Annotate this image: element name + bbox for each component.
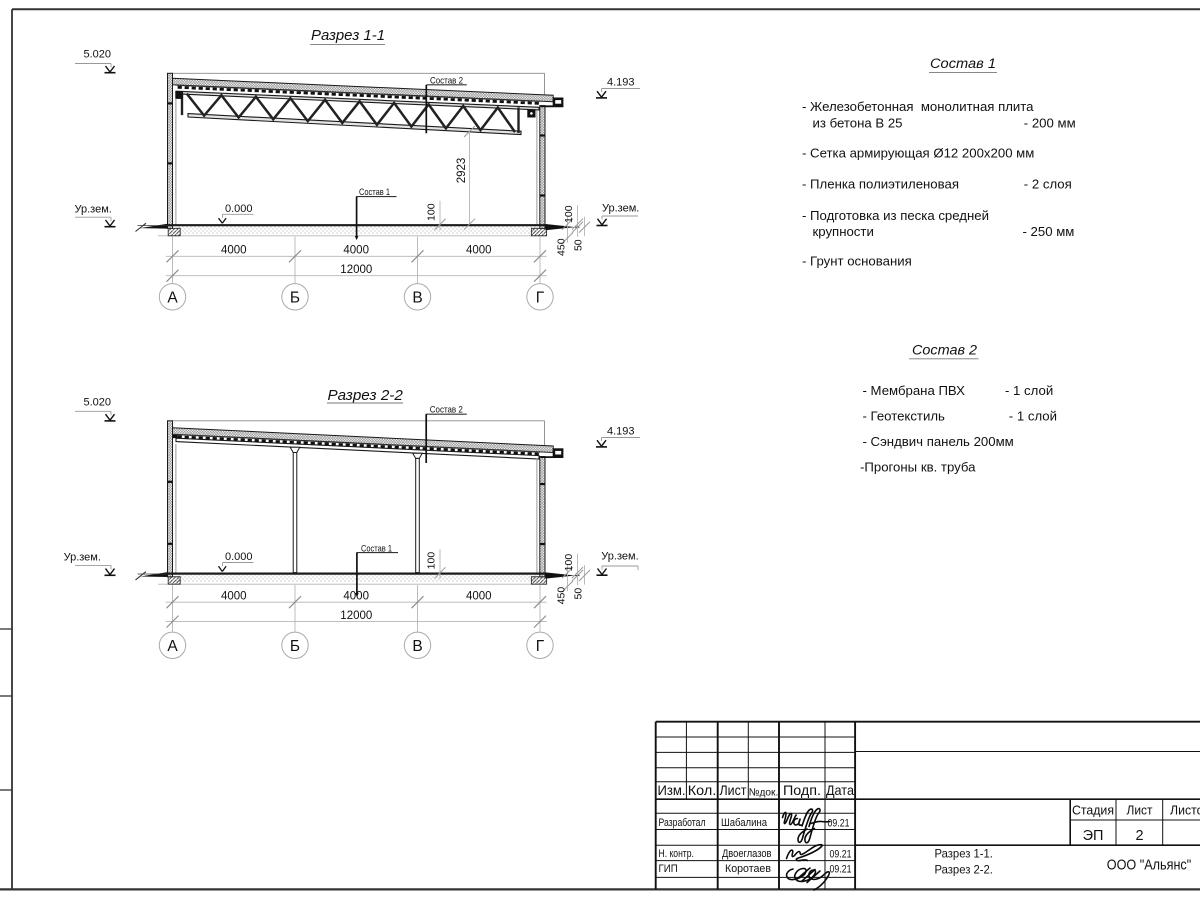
svg-text:Стадия: Стадия	[1072, 803, 1114, 818]
svg-text:из бетона В 25: из бетона В 25	[813, 116, 903, 131]
svg-text:Ур.зем.: Ур.зем.	[601, 550, 638, 562]
svg-text:4000: 4000	[221, 590, 247, 602]
svg-text:Разработал: Разработал	[659, 817, 706, 829]
svg-text:А: А	[167, 638, 178, 655]
svg-text:2: 2	[1135, 828, 1143, 844]
svg-text:50: 50	[573, 588, 585, 600]
svg-text:4.193: 4.193	[607, 77, 635, 89]
svg-text:12000: 12000	[340, 610, 372, 622]
svg-text:В: В	[412, 638, 422, 655]
svg-text:4000: 4000	[343, 590, 369, 602]
svg-text:Н. контр.: Н. контр.	[659, 848, 694, 860]
svg-text:Лист: Лист	[1127, 803, 1153, 818]
svg-text:12000: 12000	[340, 264, 372, 276]
svg-text:- Грунт основания: - Грунт основания	[802, 253, 912, 268]
svg-text:0.000: 0.000	[225, 551, 253, 563]
svg-text:- 250 мм: - 250 мм	[1023, 224, 1075, 239]
svg-text:- 2 слоя: - 2 слоя	[1024, 176, 1072, 191]
svg-text:4000: 4000	[466, 590, 492, 602]
svg-text:450: 450	[556, 238, 568, 256]
svg-text:А: А	[167, 289, 178, 306]
svg-text:5.020: 5.020	[84, 397, 112, 409]
svg-text:- Железобетонная монолитная п: - Железобетонная монолитная плита	[802, 99, 1034, 114]
svg-text:- Сетка армирующая Ø12 200х200: - Сетка армирующая Ø12 200х200 мм	[802, 146, 1034, 161]
svg-text:100: 100	[426, 552, 438, 570]
svg-text:Б: Б	[290, 289, 300, 306]
svg-text:Ур.зем.: Ур.зем.	[64, 552, 101, 564]
svg-text:-Прогоны кв. труба: -Прогоны кв. труба	[860, 460, 976, 475]
svg-text:ООО "Альянс": ООО "Альянс"	[1107, 857, 1192, 874]
svg-text:- Пленка полиэтиленовая: - Пленка полиэтиленовая	[802, 176, 959, 191]
svg-text:ЭП: ЭП	[1083, 828, 1104, 844]
svg-text:Изм.: Изм.	[658, 782, 686, 798]
svg-text:Б: Б	[290, 638, 300, 655]
svg-text:5.020: 5.020	[84, 49, 112, 61]
svg-text:крупности: крупности	[813, 224, 874, 239]
svg-text:Разрез 2-2.: Разрез 2-2.	[935, 863, 993, 877]
svg-text:Дата: Дата	[826, 782, 854, 798]
svg-text:- 1 слой: - 1 слой	[1009, 409, 1057, 424]
svg-text:- Мембрана ПВХ: - Мембрана ПВХ	[863, 383, 966, 398]
svg-text:Коротаев: Коротаев	[725, 863, 771, 875]
svg-text:Ур.зем.: Ур.зем.	[602, 203, 639, 215]
svg-text:Разрез 2-2: Разрез 2-2	[328, 387, 404, 404]
svg-text:100: 100	[426, 203, 438, 221]
svg-text:100: 100	[563, 554, 575, 572]
svg-text:Разрез 1-1: Разрез 1-1	[311, 27, 385, 44]
svg-text:ГИП: ГИП	[659, 863, 678, 875]
svg-text:В: В	[412, 289, 422, 306]
svg-text:- Подготовка из песка средней: - Подготовка из песка средней	[802, 208, 989, 223]
svg-text:09.21: 09.21	[830, 863, 852, 875]
svg-text:Г: Г	[536, 638, 545, 655]
svg-text:Состав 1: Состав 1	[930, 56, 996, 71]
svg-text:50: 50	[573, 239, 585, 251]
svg-text:450: 450	[556, 587, 568, 605]
svg-text:Лист: Лист	[720, 782, 748, 798]
svg-text:Листов: Листов	[1170, 803, 1200, 818]
svg-text:Разрез 1-1.: Разрез 1-1.	[935, 847, 993, 861]
svg-text:- 1 слой: - 1 слой	[1005, 383, 1053, 398]
svg-text:2923: 2923	[456, 158, 468, 184]
svg-text:Г: Г	[536, 289, 545, 306]
svg-text:09.21: 09.21	[828, 817, 850, 829]
svg-text:0.000: 0.000	[225, 203, 253, 215]
svg-text:4000: 4000	[221, 245, 247, 257]
svg-text:Подп.: Подп.	[783, 782, 821, 798]
svg-text:09.21: 09.21	[830, 848, 852, 860]
svg-text:4000: 4000	[343, 245, 369, 257]
svg-text:- Сэндвич панель 200мм: - Сэндвич панель 200мм	[863, 434, 1014, 449]
svg-text:4000: 4000	[466, 245, 492, 257]
svg-text:Кол.: Кол.	[688, 782, 717, 798]
svg-text:- Геотекстиль: - Геотекстиль	[863, 409, 946, 424]
svg-text:Двоеглазов: Двоеглазов	[722, 848, 772, 860]
svg-text:100: 100	[563, 205, 575, 223]
svg-text:Ур.зем.: Ур.зем.	[75, 203, 112, 215]
svg-text:Шабалина: Шабалина	[721, 817, 768, 829]
svg-text:- 200 мм: - 200 мм	[1024, 116, 1076, 131]
svg-text:№док.: №док.	[749, 787, 779, 799]
svg-text:Состав 2: Состав 2	[912, 343, 978, 358]
svg-text:Состав 2: Состав 2	[430, 404, 463, 415]
svg-text:4.193: 4.193	[607, 426, 635, 438]
